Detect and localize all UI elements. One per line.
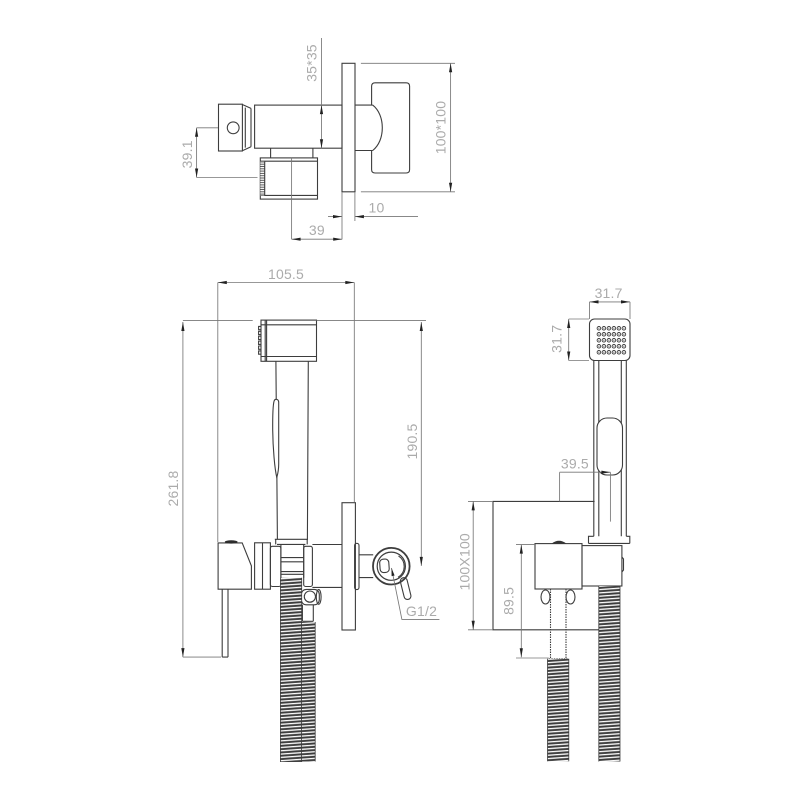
svg-text:100X100: 100X100	[457, 533, 473, 590]
svg-text:261.8: 261.8	[165, 470, 181, 506]
svg-text:35*35: 35*35	[304, 44, 320, 82]
svg-text:190.5: 190.5	[404, 423, 420, 459]
svg-text:G1/2: G1/2	[406, 603, 437, 619]
svg-text:10: 10	[369, 200, 385, 216]
svg-text:89.5: 89.5	[501, 587, 517, 615]
svg-text:31.7: 31.7	[595, 285, 623, 301]
svg-text:100*100: 100*100	[433, 101, 449, 155]
svg-text:105.5: 105.5	[268, 266, 304, 282]
svg-text:39.5: 39.5	[561, 456, 589, 472]
svg-text:31.7: 31.7	[549, 325, 565, 353]
svg-text:39: 39	[309, 222, 325, 238]
svg-text:39.1: 39.1	[179, 140, 195, 168]
